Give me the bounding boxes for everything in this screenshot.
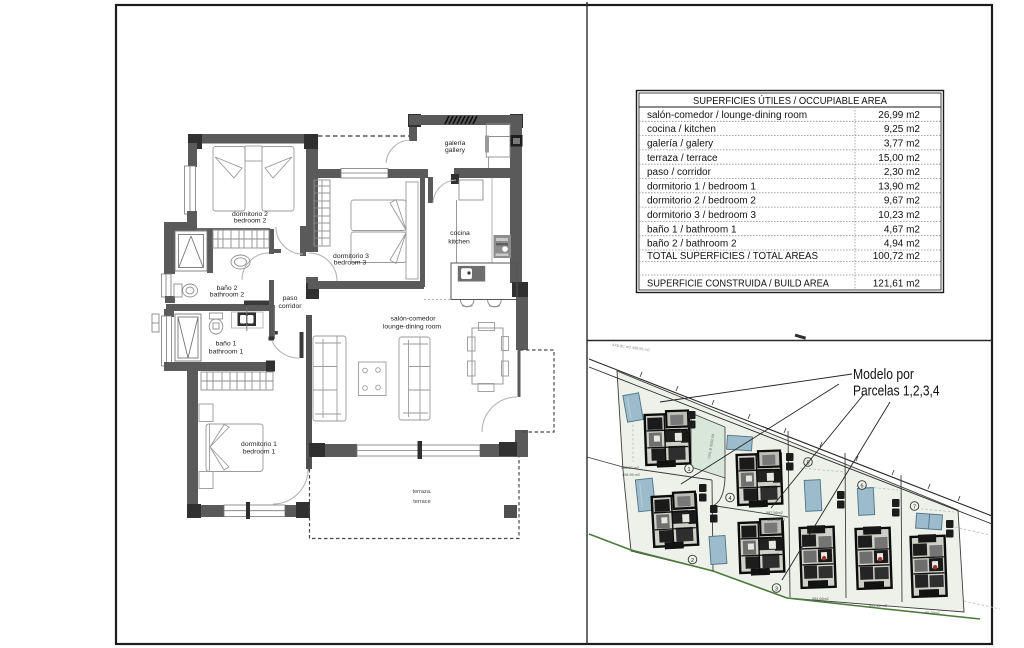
svg-text:2,30 m2: 2,30 m2 [884,167,921,178]
svg-text:baño 1: baño 1 [216,341,237,348]
svg-text:baño 2 / bathroom 2: baño 2 / bathroom 2 [647,239,737,250]
svg-text:1: 1 [687,467,690,473]
svg-text:paso / corridor: paso / corridor [647,167,712,178]
svg-text:Parcelas 1,2,3,4: Parcelas 1,2,3,4 [853,384,940,400]
svg-text:cocina: cocina [450,230,470,237]
svg-text:bedroom 1: bedroom 1 [243,449,276,456]
svg-text:9,67 m2: 9,67 m2 [884,196,921,207]
svg-text:terraza / terrace: terraza / terrace [647,153,718,164]
svg-text:dormitorio 2 / bedroom 2: dormitorio 2 / bedroom 2 [647,196,756,207]
svg-text:406.80 m2: 406.80 m2 [621,466,639,470]
svg-text:dormitorio 1 / bedroom 1: dormitorio 1 / bedroom 1 [647,181,756,192]
svg-text:bedroom 2: bedroom 2 [234,218,267,225]
svg-text:cocina / kitchen: cocina / kitchen [647,124,716,135]
svg-text:TOTAL SUPERFICIES / TOTAL AREA: TOTAL SUPERFICIES / TOTAL AREAS [647,251,818,262]
svg-text:bedroom 3: bedroom 3 [334,260,367,267]
svg-text:bathroom 2: bathroom 2 [210,292,245,299]
svg-text:gallery: gallery [445,147,466,154]
svg-text:4,94 m2: 4,94 m2 [884,239,921,250]
svg-text:kitchen: kitchen [448,239,470,246]
svg-text:dormitorio 3 / bedroom 3: dormitorio 3 / bedroom 3 [647,210,756,221]
svg-text:7: 7 [913,504,916,510]
svg-text:galería / galery: galería / galery [647,139,713,150]
svg-text:587.56m2: 587.56m2 [766,511,783,515]
svg-text:446.76 m2: 446.76 m2 [767,518,785,522]
svg-text:96.26m2: 96.26m2 [925,611,940,615]
svg-text:galería: galería [445,140,466,147]
svg-text:4,67 m2: 4,67 m2 [884,224,921,235]
svg-text:3,77 m2: 3,77 m2 [884,139,921,150]
svg-text:dormitorio 1: dormitorio 1 [241,441,277,448]
svg-text:paso: paso [283,295,298,302]
svg-text:baño 1 / bathroom 1: baño 1 / bathroom 1 [647,224,737,235]
svg-text:terraza.: terraza. [413,489,432,495]
svg-text:9,25 m2: 9,25 m2 [884,124,921,135]
svg-text:26,99 m2: 26,99 m2 [878,110,920,121]
svg-text:2: 2 [691,558,694,564]
svg-text:100,72 m2: 100,72 m2 [873,251,921,262]
svg-text:lounge-dining room: lounge-dining room [383,324,442,331]
svg-text:terrace: terrace [413,499,430,505]
svg-text:6: 6 [860,483,863,489]
svg-text:Modelo por: Modelo por [853,367,914,383]
svg-text:408.95 m2: 408.95 m2 [622,473,640,477]
svg-text:salón-comedor / lounge-dining: salón-comedor / lounge-dining room [647,110,807,121]
svg-text:SUPERFICIES ÚTILES / OCCUPIABL: SUPERFICIES ÚTILES / OCCUPIABLE AREA [693,94,887,107]
svg-text:3: 3 [775,586,778,592]
svg-text:corridor: corridor [278,303,302,310]
svg-text:121,61 m2: 121,61 m2 [873,278,921,289]
svg-text:10,23 m2: 10,23 m2 [878,210,920,221]
svg-text:451.95 m2: 451.95 m2 [869,604,887,608]
svg-text:SUPERFICIE CONSTRUIDA / BUILD: SUPERFICIE CONSTRUIDA / BUILD AREA [647,278,829,289]
svg-text:bathroom 1: bathroom 1 [209,349,244,356]
svg-text:4: 4 [728,496,731,502]
svg-text:salón-comedor: salón-comedor [391,316,437,323]
svg-text:584.66m2: 584.66m2 [812,597,829,601]
svg-text:13,90 m2: 13,90 m2 [878,181,920,192]
svg-text:15,00 m2: 15,00 m2 [878,153,920,164]
